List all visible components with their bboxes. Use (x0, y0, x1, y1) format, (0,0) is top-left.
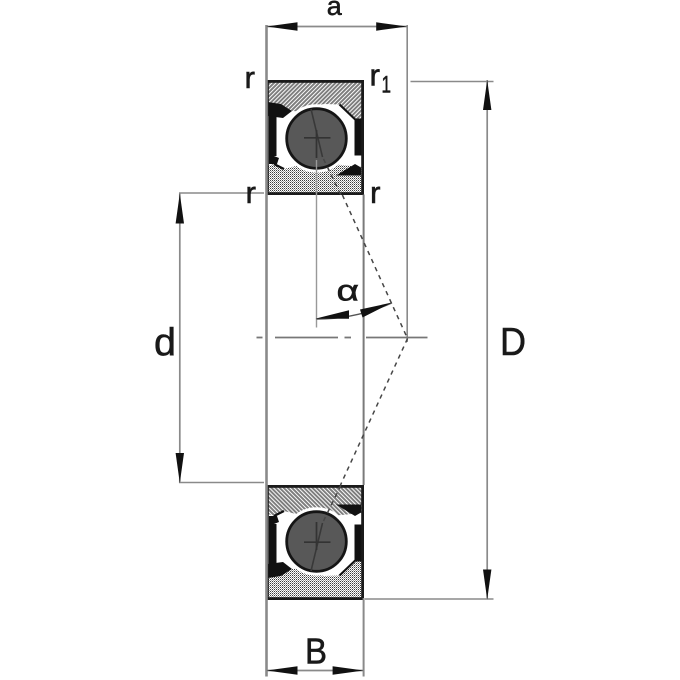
svg-text:r: r (370, 175, 381, 210)
svg-text:d: d (154, 322, 176, 365)
svg-text:B: B (305, 631, 327, 672)
svg-text:D: D (500, 321, 526, 364)
svg-text:r: r (246, 175, 257, 210)
svg-text:r: r (370, 58, 381, 93)
svg-text:α: α (337, 275, 360, 308)
svg-text:r: r (245, 60, 256, 95)
svg-text:a: a (327, 0, 343, 21)
svg-text:1: 1 (382, 72, 392, 99)
